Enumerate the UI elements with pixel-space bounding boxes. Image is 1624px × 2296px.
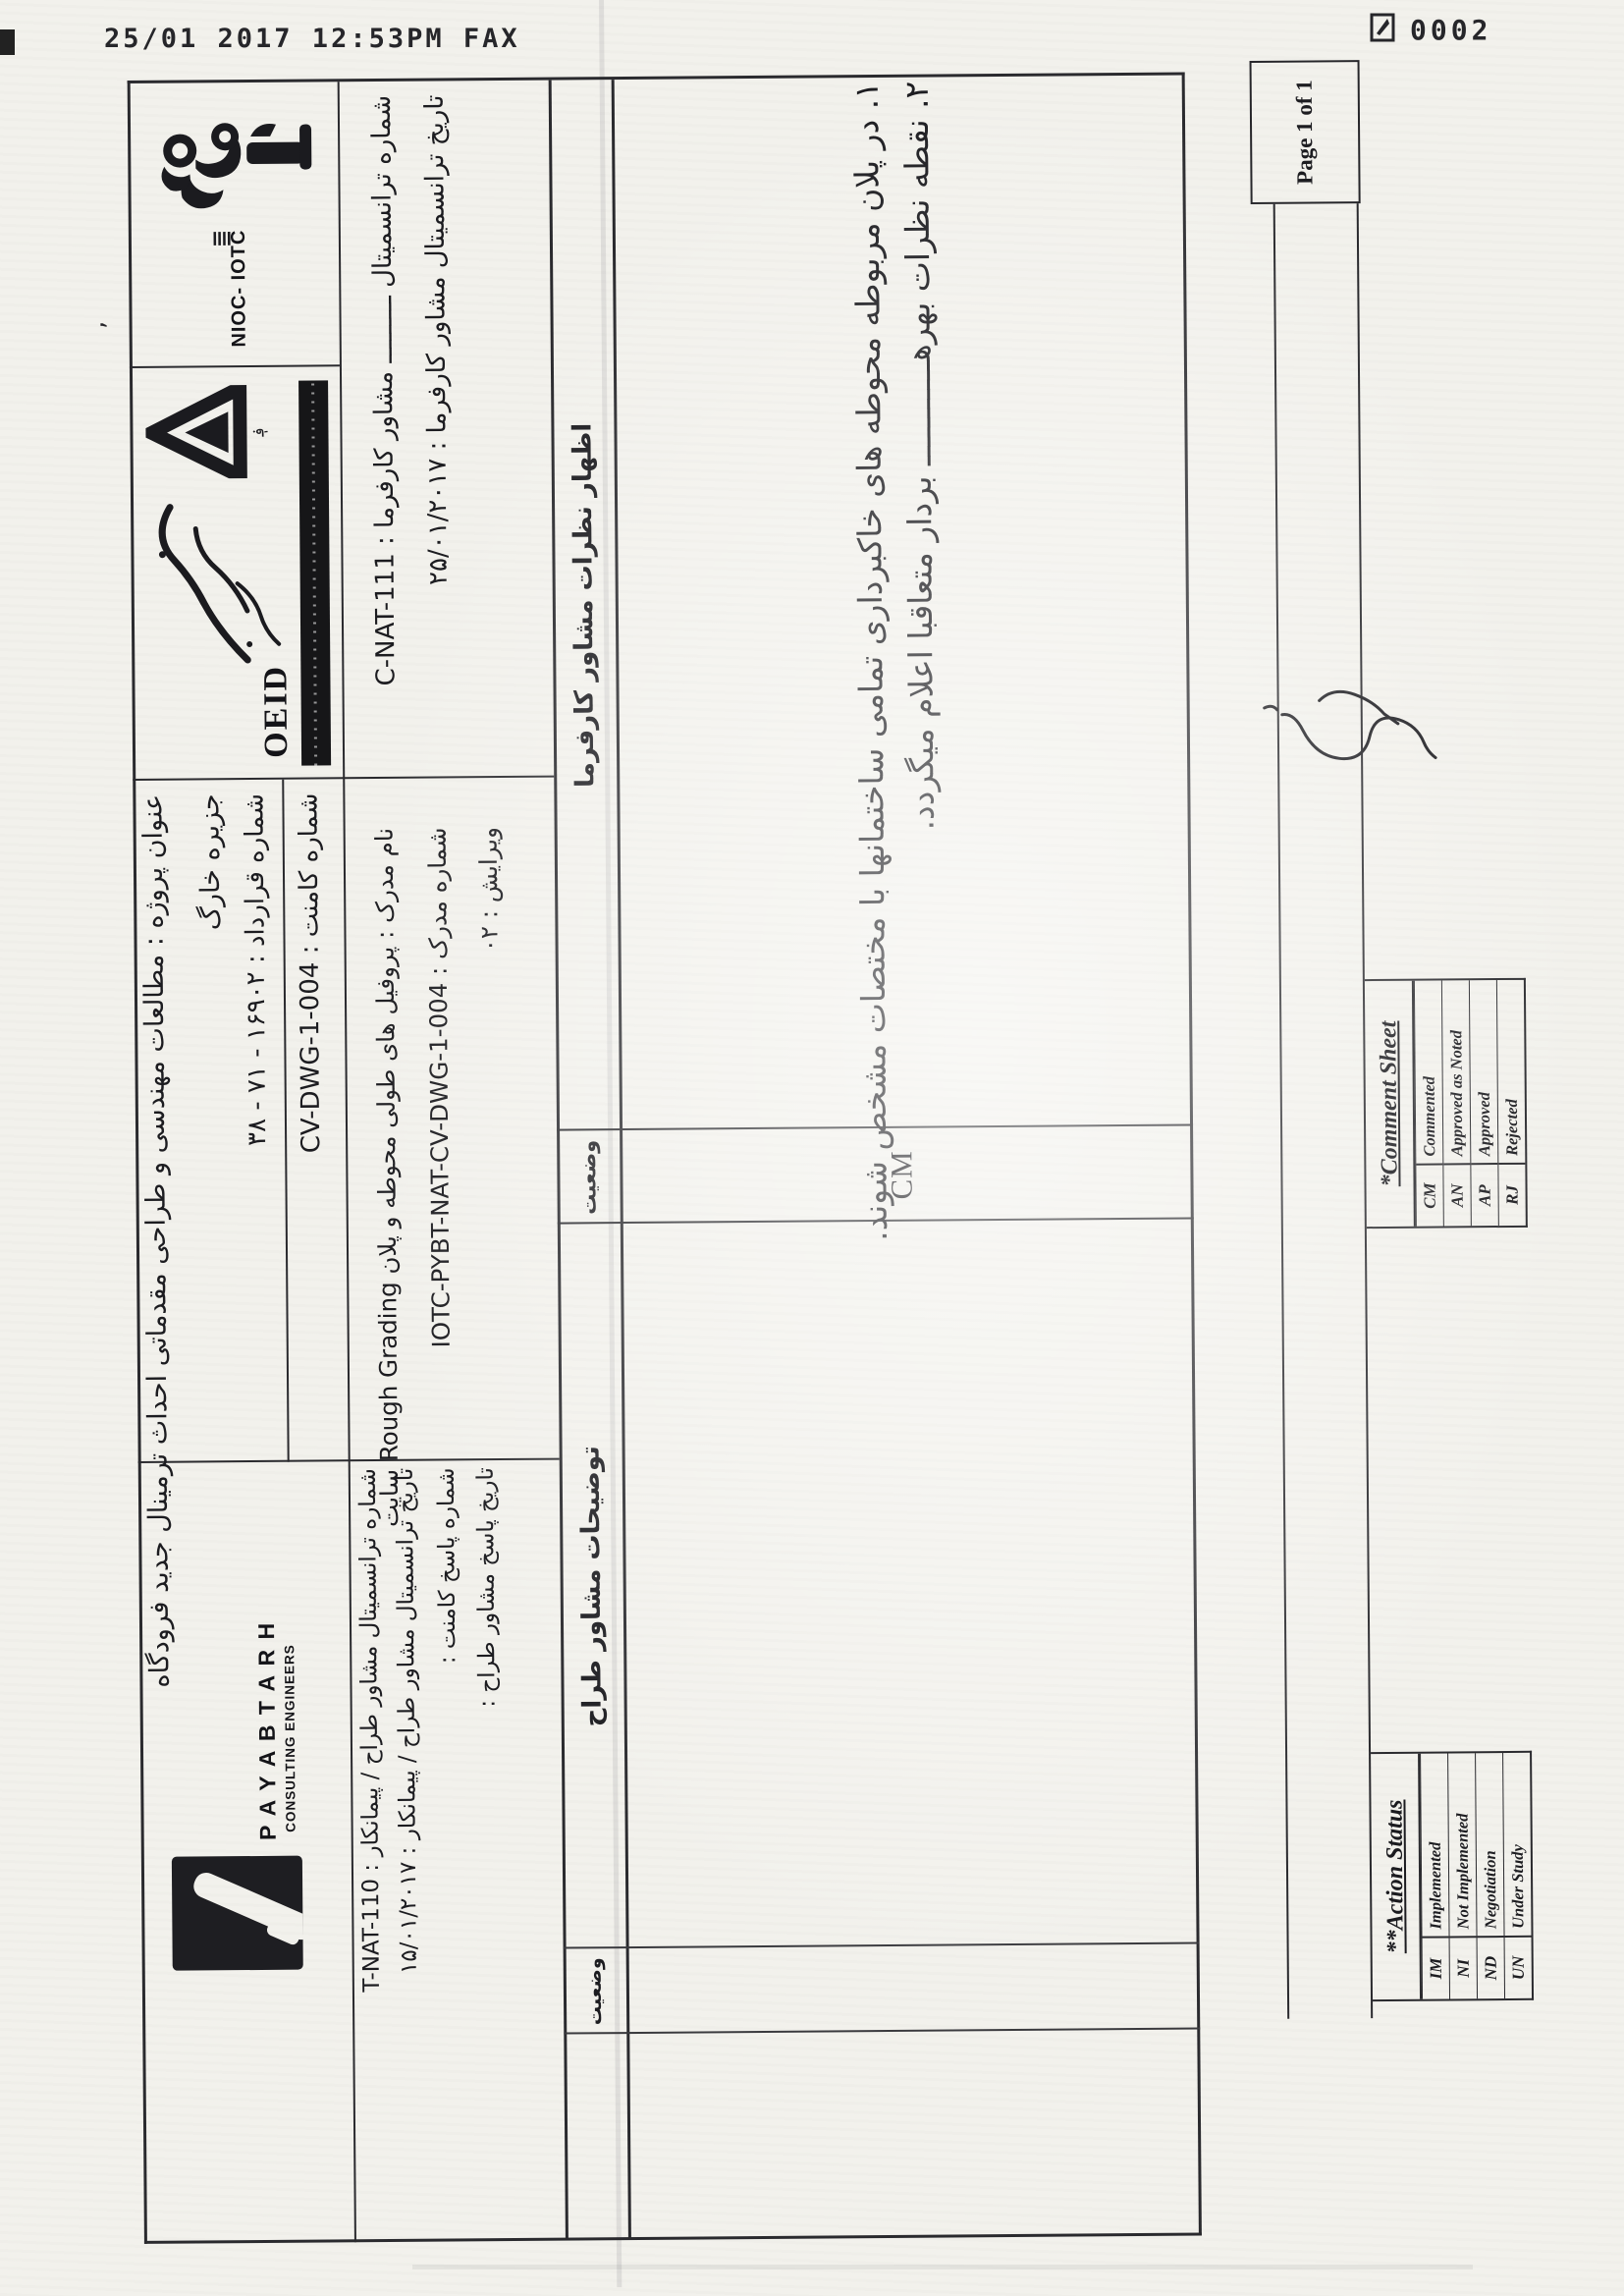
nioc-speedlines-icon: ≣ bbox=[217, 230, 228, 348]
legend-code: CM bbox=[1416, 1163, 1443, 1226]
legend-label: Commented bbox=[1418, 981, 1438, 1164]
client-transmittal-date: تاریخ ترانسمیتال مشاور کارفرما : ۲۵/۰۱/۲… bbox=[420, 94, 454, 585]
legend-row-ni: NI Not Implemented bbox=[1447, 1753, 1477, 1998]
legend-code: UN bbox=[1505, 1936, 1533, 1998]
payabtarh-logo-icon bbox=[172, 1856, 303, 1971]
fax-scanned-comment-sheet: { "fax_header": { "timestamp": "25/01 20… bbox=[0, 0, 1624, 2296]
designer-transmittal-date: تاریخ ترانسمیتال مشاور طراح / پیمانکار :… bbox=[393, 1468, 422, 1974]
oeid-triangle-icon: ؋ bbox=[145, 385, 279, 479]
designer-response-date: تاریخ پاسخ مشاور طراح : bbox=[473, 1467, 501, 1708]
payabtarh-subtitle: CONSULTING ENGINEERS bbox=[282, 1621, 298, 1840]
comment-sheet-legend-title: *Comment Sheet bbox=[1365, 981, 1416, 1227]
action-status-legend: **Action Status IM Implemented NI Not Im… bbox=[1371, 1751, 1534, 2001]
legend-row-un: UN Under Study bbox=[1502, 1753, 1532, 1998]
project-title-line2: جزیره خارگ bbox=[194, 793, 226, 930]
legend-label: Negotiation bbox=[1480, 1753, 1500, 1936]
comment-line-2: ۲. نقطه نظرات بهرهـــــــــــ بردار متعا… bbox=[897, 82, 942, 831]
legend-code: AN bbox=[1443, 1163, 1471, 1226]
oeid-logo-cell: ؋ OEID bbox=[130, 366, 343, 781]
legend-code: RJ bbox=[1498, 1163, 1526, 1226]
oeid-banner bbox=[298, 380, 331, 765]
svg-text:؋: ؋ bbox=[248, 427, 267, 438]
comment-sheet-legend: *Comment Sheet CM Commented AN Approved … bbox=[1365, 978, 1528, 1229]
document-revision: ویرایش : ۰۲ bbox=[474, 827, 504, 952]
project-title-line1: عنوان پروژه : مطالعات مهندسی و طراحی مقد… bbox=[137, 794, 175, 1688]
legend-label: Under Study bbox=[1507, 1753, 1528, 1936]
comment-number: شماره کامنت : CV-DWG-1-004 bbox=[294, 793, 326, 1153]
document-name: نام مدرک : پروفیل های طولی محوطه و پلان … bbox=[370, 828, 405, 1527]
header-client-comments: اظهار نظرات مشاور کارفرما bbox=[551, 80, 618, 1130]
legend-row-rj: RJ Rejected bbox=[1496, 980, 1526, 1226]
header-status: وضعیت bbox=[559, 1130, 619, 1224]
legend-row-an: AN Approved as Noted bbox=[1441, 980, 1471, 1226]
legend-row-cm: CM Commented bbox=[1414, 981, 1443, 1227]
legend-code: NI bbox=[1450, 1936, 1478, 1998]
legend-row-im: IM Implemented bbox=[1420, 1753, 1449, 1998]
comment-line-1: ۱. در پلان مربوطه محوطه های خاکبرداری تم… bbox=[847, 82, 894, 1241]
document-number: شماره مدرک : IOTC-PYBT-NAT-CV-DWG-1-004 bbox=[423, 827, 456, 1347]
comment-response-number: شماره پاسخ کامنت : bbox=[434, 1467, 461, 1664]
legend-code: ND bbox=[1478, 1936, 1505, 1998]
payabtarh-name: P A Y A B T A R H bbox=[253, 1621, 282, 1840]
oeid-logo-text: OEID bbox=[257, 665, 296, 758]
grid-line bbox=[564, 2028, 1200, 2035]
signature-mark bbox=[1242, 667, 1489, 811]
legend-row-nd: ND Negotiation bbox=[1475, 1753, 1504, 1998]
legend-label: Not Implemented bbox=[1452, 1753, 1473, 1936]
page-indicator: Page 1 of 1 bbox=[1250, 60, 1361, 204]
status-value: CM bbox=[873, 1128, 931, 1222]
designer-transmittal-number: شماره ترانسمیتال مشاور طراح / پیمانکار :… bbox=[355, 1468, 385, 1993]
stray-ink-mark: ‚ bbox=[81, 321, 111, 330]
client-transmittal-number: شماره ترانسمیتال ـــــــــ مشاور کارفرما… bbox=[367, 95, 402, 686]
legend-label: Approved bbox=[1473, 980, 1493, 1163]
rotated-document-layer: ≣ NIOC- IOTC ؋ bbox=[0, 0, 1624, 2292]
legend-code: AP bbox=[1471, 1163, 1498, 1226]
header-designer-notes: توضیحات مشاور طراح bbox=[560, 1224, 624, 1948]
legend-strip-top bbox=[1272, 183, 1289, 2019]
grid-line bbox=[282, 780, 289, 1462]
legend-label: Rejected bbox=[1500, 980, 1521, 1163]
contract-number: شماره قرارداد : ۱۶۹۰۲ - ۷۱ - ۳۸ bbox=[240, 793, 272, 1146]
form-border-bottom bbox=[1182, 73, 1202, 2236]
nioc-logo-cell: ≣ NIOC- IOTC bbox=[128, 81, 340, 368]
legend-label: Implemented bbox=[1425, 1754, 1445, 1937]
action-status-legend-title: **Action Status bbox=[1371, 1754, 1422, 1999]
nioc-logo-text: NIOC- IOTC bbox=[227, 230, 250, 348]
legend-label: Approved as Noted bbox=[1445, 980, 1466, 1163]
header-status-2: وضعیت bbox=[566, 1948, 625, 2034]
legend-code: IM bbox=[1423, 1936, 1450, 1998]
grid-line bbox=[564, 1942, 1200, 1949]
legend-row-ap: AP Approved bbox=[1469, 980, 1498, 1226]
nioc-emblem-icon bbox=[151, 101, 314, 220]
